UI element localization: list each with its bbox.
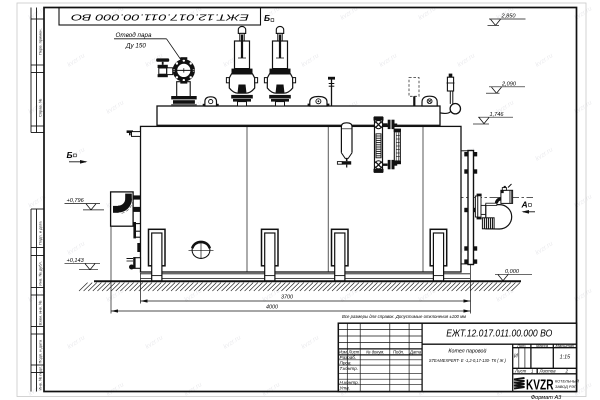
svg-text:И: И xyxy=(514,354,518,360)
svg-text:Б: Б xyxy=(264,13,270,23)
svg-text:Все размеры для справок. Допус: Все размеры для справок. Допустимые откл… xyxy=(342,314,467,320)
svg-text:Дата: Дата xyxy=(409,349,422,354)
svg-text:Справ. №: Справ. № xyxy=(38,99,43,117)
svg-text:3700: 3700 xyxy=(281,294,293,300)
svg-text:Т.контр.: Т.контр. xyxy=(340,366,359,371)
svg-text:0,000: 0,000 xyxy=(505,269,520,275)
svg-text:Пров.: Пров. xyxy=(340,361,352,366)
svg-text:Лит.: Лит. xyxy=(516,343,526,348)
svg-text:Масса: Масса xyxy=(536,343,549,348)
svg-text:Инв. № подл.: Инв. № подл. xyxy=(38,366,43,391)
svg-text:Лист: Лист xyxy=(514,369,527,374)
svg-text:Разраб.: Разраб. xyxy=(340,355,357,360)
svg-text:Котел паровой: Котел паровой xyxy=(448,348,486,355)
svg-text:Масштаб: Масштаб xyxy=(556,343,575,348)
svg-text:А: А xyxy=(521,200,528,210)
svg-text:Утв.: Утв. xyxy=(340,386,350,391)
svg-text:Изм.: Изм. xyxy=(339,349,348,354)
svg-text:Б: Б xyxy=(67,150,73,160)
svg-text:KVZR: KVZR xyxy=(526,378,554,394)
svg-text:Формат А3: Формат А3 xyxy=(531,395,562,400)
svg-text:Подп. и дата: Подп. и дата xyxy=(38,221,43,245)
svg-text:+0,143: +0,143 xyxy=(67,258,85,264)
svg-text:Инв. № дубл.: Инв. № дубл. xyxy=(38,261,43,286)
svg-text:Лист: Лист xyxy=(348,349,360,354)
svg-text:+0,796: +0,796 xyxy=(67,198,85,204)
svg-text:Подп.: Подп. xyxy=(393,349,404,354)
svg-text:Подп. и дата: Подп. и дата xyxy=(38,339,43,363)
svg-text:Листов: Листов xyxy=(539,369,557,374)
svg-text:1:15: 1:15 xyxy=(560,355,571,361)
svg-text:№ докум.: № докум. xyxy=(366,349,384,354)
svg-text:STEAMEXPERT- Е -1,2-0,17-130-: STEAMEXPERT- Е -1,2-0,17-130- ТК ( Ж ) xyxy=(429,358,506,363)
svg-text:2: 2 xyxy=(565,369,569,374)
svg-text:ЗАВОД РЭП: ЗАВОД РЭП xyxy=(555,385,577,389)
svg-text:Отвод пара: Отвод пара xyxy=(116,31,152,39)
svg-text:Перв. примен.: Перв. примен. xyxy=(38,28,43,55)
svg-text:Ду 150: Ду 150 xyxy=(125,43,146,50)
svg-text:ЕЖТ.12.017.011.00.000 ВО: ЕЖТ.12.017.011.00.000 ВО xyxy=(446,329,552,340)
svg-text:Н.контр.: Н.контр. xyxy=(340,380,359,385)
svg-text:ЕЖТ.12.017.011.00.000 ВО: ЕЖТ.12.017.011.00.000 ВО xyxy=(70,12,249,22)
svg-text:4000: 4000 xyxy=(266,304,278,310)
svg-text:Взам. инв. №: Взам. инв. № xyxy=(38,301,43,326)
svg-text:КОТЕЛЬНЫЙ: КОТЕЛЬНЫЙ xyxy=(555,380,579,384)
